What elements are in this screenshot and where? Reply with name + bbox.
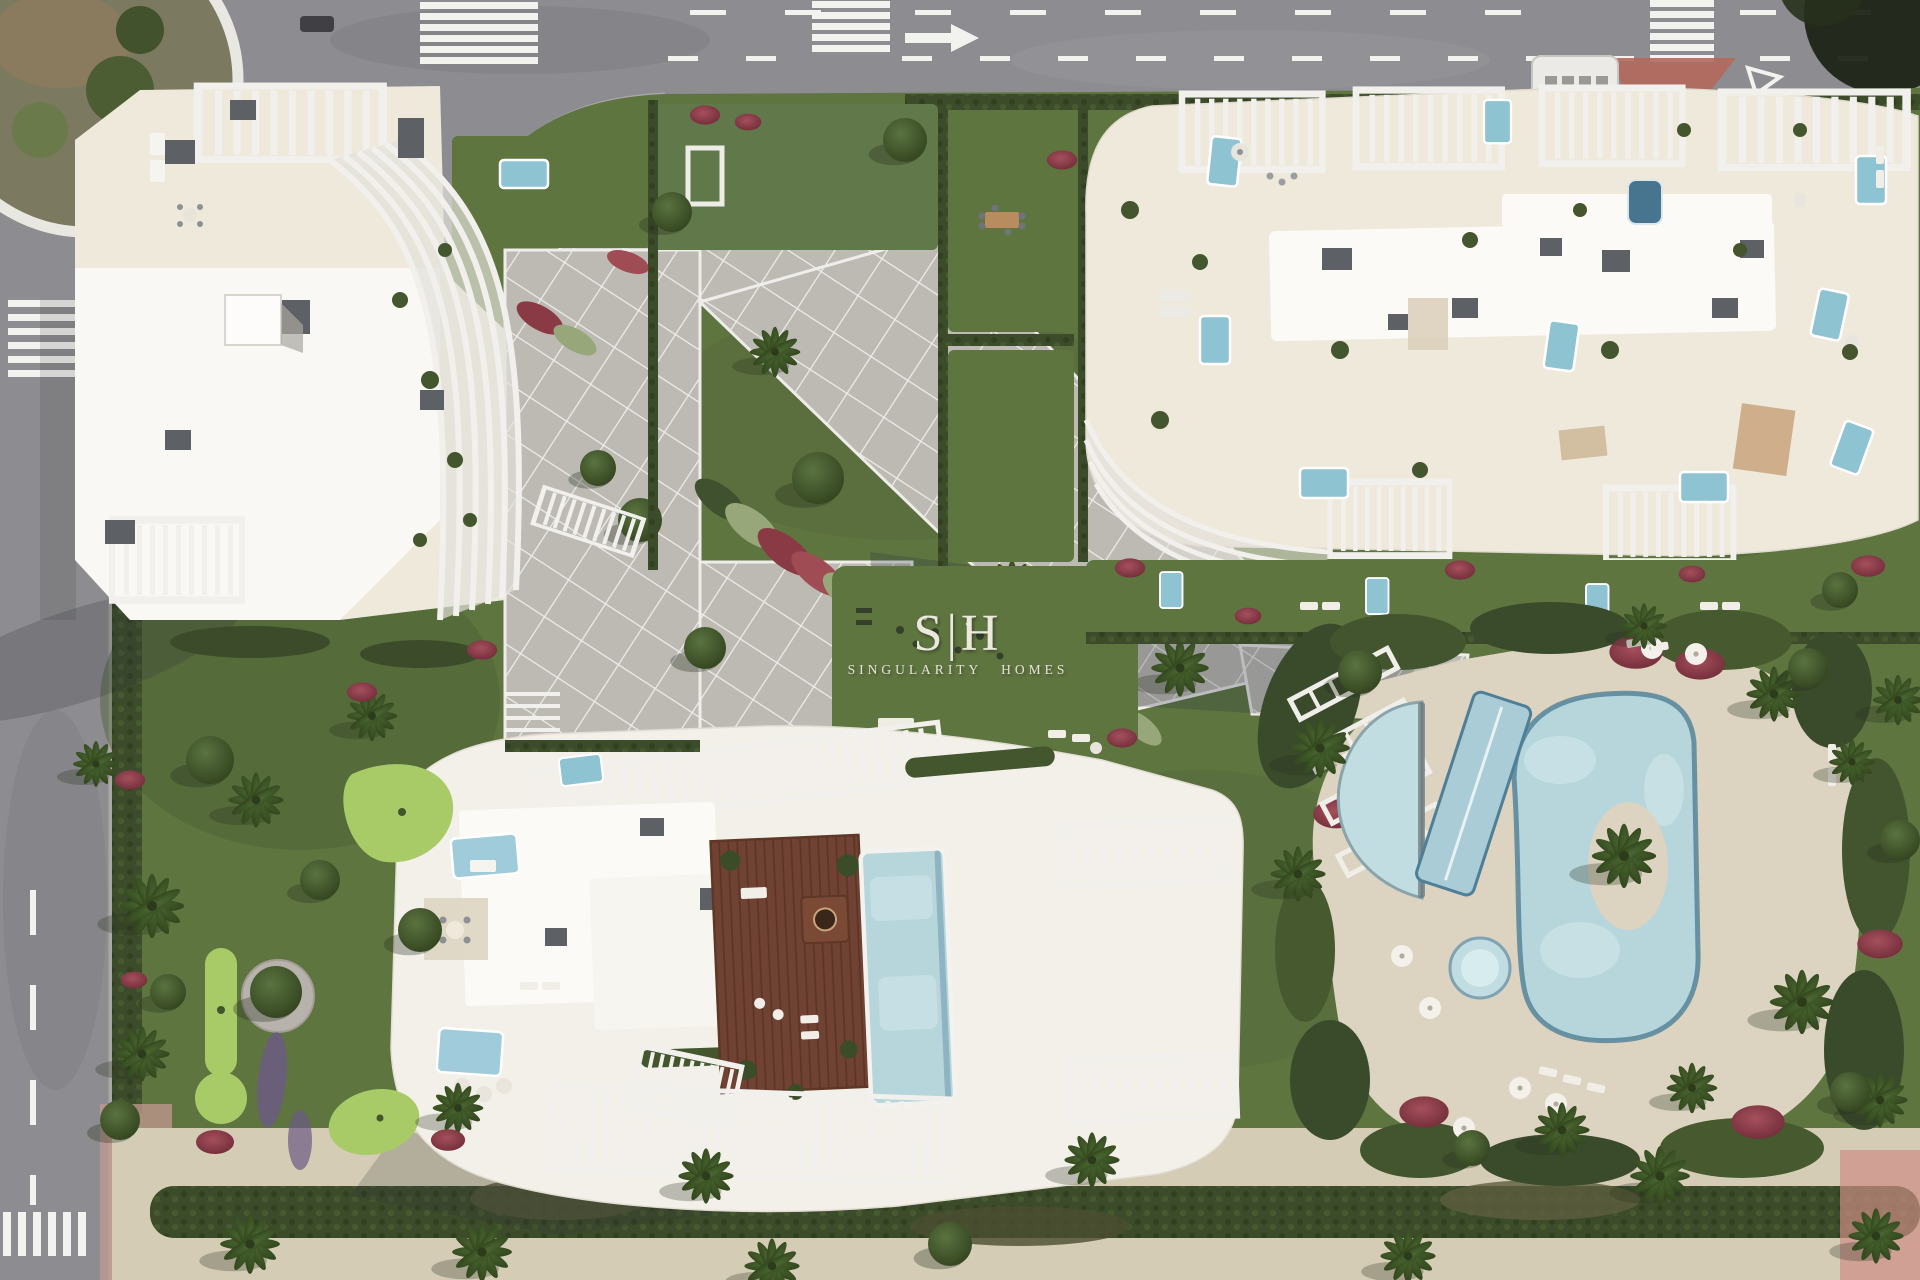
jacuzzi — [1628, 180, 1662, 224]
building-b — [1086, 88, 1918, 590]
golf-hole — [217, 1006, 225, 1014]
flower-bush — [1679, 566, 1706, 583]
flower-bush — [121, 972, 148, 989]
deck-bench — [741, 887, 767, 899]
watermark-name: SINGULARITY HOMES — [848, 662, 1069, 677]
flower-bush — [1399, 1096, 1448, 1127]
roof-slab-core — [1269, 221, 1776, 342]
plunge-pool — [1366, 578, 1389, 614]
roundabout-plants — [116, 6, 164, 54]
hedge-row — [505, 740, 700, 752]
minigolf-lane-end — [195, 1072, 247, 1124]
flower-bush — [196, 1130, 234, 1154]
hedge-row — [360, 640, 480, 668]
rooftop-pool — [860, 848, 955, 1105]
flower-bush — [1235, 608, 1262, 625]
hedge-divider — [948, 334, 1074, 346]
roundabout-plants — [12, 102, 68, 158]
plunge-pool — [1160, 572, 1183, 608]
flower-bush — [1445, 560, 1475, 579]
flower-bush — [1731, 1105, 1784, 1139]
building-shadow — [40, 300, 76, 620]
flower-bush — [1851, 555, 1885, 577]
roof-cube — [225, 295, 281, 345]
sun-lounger — [1700, 602, 1718, 610]
golf-hole — [377, 1115, 384, 1122]
lawn-plot — [452, 136, 652, 248]
plunge-pool — [558, 754, 603, 787]
sun-lounger — [1722, 602, 1740, 610]
hedge-row — [170, 626, 330, 658]
sun-lounger — [1300, 602, 1318, 610]
flower-bush — [1857, 930, 1903, 959]
flower-bush — [1107, 728, 1137, 747]
watermark-logo: S|H — [914, 605, 1003, 662]
flower-bush — [347, 682, 377, 701]
lawn-plot — [948, 350, 1074, 562]
flower-bush — [1047, 150, 1077, 169]
flower-bush — [115, 770, 145, 789]
fire-pit — [814, 908, 837, 931]
garden-pool — [500, 160, 548, 188]
sun-lounger — [1322, 602, 1340, 610]
aerial-architectural-render: S|H SINGULARITY HOMES — [0, 0, 1920, 1280]
round-pool-inner — [1461, 949, 1499, 987]
pool-caustic — [1540, 922, 1620, 978]
hedge-divider — [648, 100, 658, 570]
flower-bush — [735, 114, 762, 131]
car — [300, 16, 334, 32]
aerial-render-stage: S|H SINGULARITY HOMES — [0, 0, 1920, 1280]
flower-bush — [431, 1129, 465, 1151]
lawn-plot — [948, 150, 1074, 332]
purple-flower-strip — [288, 1110, 312, 1170]
golf-hole — [398, 808, 406, 816]
flower-bush — [1115, 558, 1145, 577]
plunge-pool — [437, 1028, 504, 1076]
hedge-blob — [1440, 1180, 1640, 1220]
flower-bush — [467, 640, 497, 659]
hedge-divider — [938, 100, 948, 570]
flower-bush — [690, 105, 720, 124]
pool-caustic — [1524, 736, 1596, 784]
